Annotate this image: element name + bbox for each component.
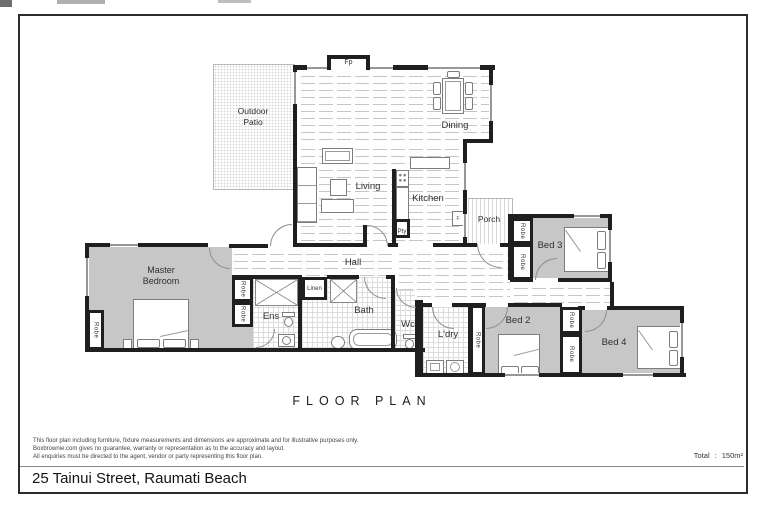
dining-chair — [433, 97, 441, 110]
sofa — [297, 167, 317, 223]
hall-label: Hall — [333, 257, 373, 268]
wall — [229, 244, 268, 248]
window — [110, 243, 138, 247]
wall — [85, 243, 89, 258]
pillow — [669, 331, 678, 348]
disclaimer-line: This floor plan including furniture, fix… — [33, 438, 463, 446]
bathtub — [349, 329, 397, 350]
fridge-label: F — [456, 216, 459, 222]
dining-chair — [465, 82, 473, 95]
master-bedroom-label: Master Bedroom — [134, 265, 188, 287]
wall — [415, 300, 423, 377]
wall — [293, 104, 297, 247]
porch-label: Porch — [466, 214, 512, 225]
wall — [87, 243, 208, 247]
wall — [608, 262, 612, 282]
window — [505, 373, 539, 377]
dining-chair — [465, 97, 473, 110]
wall — [298, 275, 302, 348]
wall — [327, 275, 359, 279]
dining-table-top — [445, 81, 461, 111]
pillow — [669, 350, 678, 366]
robe-closet: Robe — [470, 305, 485, 375]
pillow — [597, 252, 606, 269]
footer-divider — [20, 466, 744, 467]
wall — [468, 243, 477, 247]
bed4-label: Bed 4 — [590, 337, 638, 348]
dining-label: Dining — [430, 120, 480, 131]
window — [680, 323, 684, 357]
pillow — [163, 339, 186, 348]
side-table — [330, 179, 347, 196]
property-address: 25 Tainui Street, Raumati Beach — [32, 470, 632, 487]
pantry-label: Pty — [398, 229, 407, 235]
window — [85, 258, 89, 296]
outdoor-patio-label: Outdoor Patio — [233, 106, 273, 128]
wall — [610, 282, 614, 308]
window — [623, 373, 653, 377]
window — [489, 85, 493, 121]
robe-label: Robe — [240, 281, 246, 297]
living-label: Living — [346, 181, 390, 192]
wall — [463, 190, 467, 214]
bath-label: Bath — [342, 305, 386, 316]
coffee-table-top — [325, 151, 350, 161]
robe-label: Robe — [568, 346, 574, 362]
total-colon: : — [715, 451, 717, 460]
stove — [396, 170, 409, 187]
wall — [392, 169, 396, 247]
window — [608, 230, 612, 262]
scan-artifact — [218, 0, 251, 3]
wall — [433, 243, 468, 247]
wall — [558, 278, 612, 282]
robe-closet: Robe — [560, 307, 582, 334]
kitchen-island — [410, 157, 450, 169]
robe-closet: Robe — [232, 277, 253, 302]
kitchen-label: Kitchen — [404, 193, 452, 204]
ensuite-label: Ens — [254, 311, 288, 322]
laundry-tub-basin — [430, 363, 440, 371]
window — [293, 72, 297, 104]
bed3-label: Bed 3 — [528, 240, 572, 251]
wall — [489, 65, 493, 85]
total-value: 150m² — [722, 451, 743, 460]
robe-label: Robe — [93, 322, 99, 338]
robe-closet: Robe — [511, 244, 533, 280]
wall — [607, 306, 684, 310]
disclaimer-line: Boxbrownie.com gives no guarantee, warra… — [33, 446, 463, 454]
washing-machine-drum — [450, 362, 460, 372]
linen-label: Linen — [307, 286, 322, 292]
robe-label: Robe — [519, 223, 525, 239]
pillow — [597, 231, 606, 250]
robe-closet: Robe — [511, 218, 533, 244]
ensuite-shower — [255, 279, 298, 306]
wall — [235, 348, 425, 352]
laundry-label: L'dry — [428, 329, 468, 340]
disclaimer-line: All enquiries must be directed to the ag… — [33, 454, 463, 462]
ensuite-basin — [282, 336, 291, 345]
robe-label: Robe — [519, 254, 525, 270]
window — [463, 163, 467, 190]
floor-plan-page: F Linen Pty Fp Outdoor Patio Dining Livi… — [0, 0, 768, 512]
wall — [393, 65, 428, 70]
wall — [85, 348, 235, 352]
dining-chair — [433, 82, 441, 95]
wall — [452, 303, 468, 307]
scan-artifact — [57, 0, 105, 4]
wall — [463, 143, 467, 163]
robe-label: Robe — [475, 332, 481, 348]
robe-closet: Robe — [232, 302, 253, 327]
window — [307, 66, 327, 70]
window — [574, 214, 600, 218]
total-area: Total:150m² — [600, 451, 743, 460]
room-master-passage — [232, 327, 253, 348]
window — [370, 66, 393, 70]
wall — [608, 214, 612, 230]
room-hall-floor — [510, 282, 610, 305]
window — [463, 214, 467, 237]
robe-closet: Robe — [87, 310, 104, 350]
fireplace-label: Fp — [344, 59, 352, 66]
wall — [463, 139, 493, 143]
wall — [423, 303, 432, 307]
bath-shower — [330, 279, 357, 303]
linen-closet: Linen — [302, 277, 327, 300]
robe-label: Robe — [568, 312, 574, 328]
wall — [508, 303, 562, 307]
robe-label: Robe — [240, 306, 246, 322]
tv-unit — [321, 199, 354, 213]
wall — [391, 277, 395, 348]
pillow — [137, 339, 160, 348]
dining-chair — [447, 71, 460, 78]
disclaimer: This floor plan including furniture, fix… — [33, 438, 463, 461]
fireplace: Fp — [327, 55, 370, 70]
scan-artifact — [0, 0, 12, 7]
bathtub-inner — [353, 333, 393, 346]
robe-closet: Robe — [560, 334, 582, 375]
pantry: Pty — [394, 219, 410, 238]
wall — [297, 243, 365, 247]
plan-title: FLOOR PLAN — [252, 394, 472, 408]
window — [428, 66, 480, 70]
total-label: Total — [694, 451, 710, 460]
